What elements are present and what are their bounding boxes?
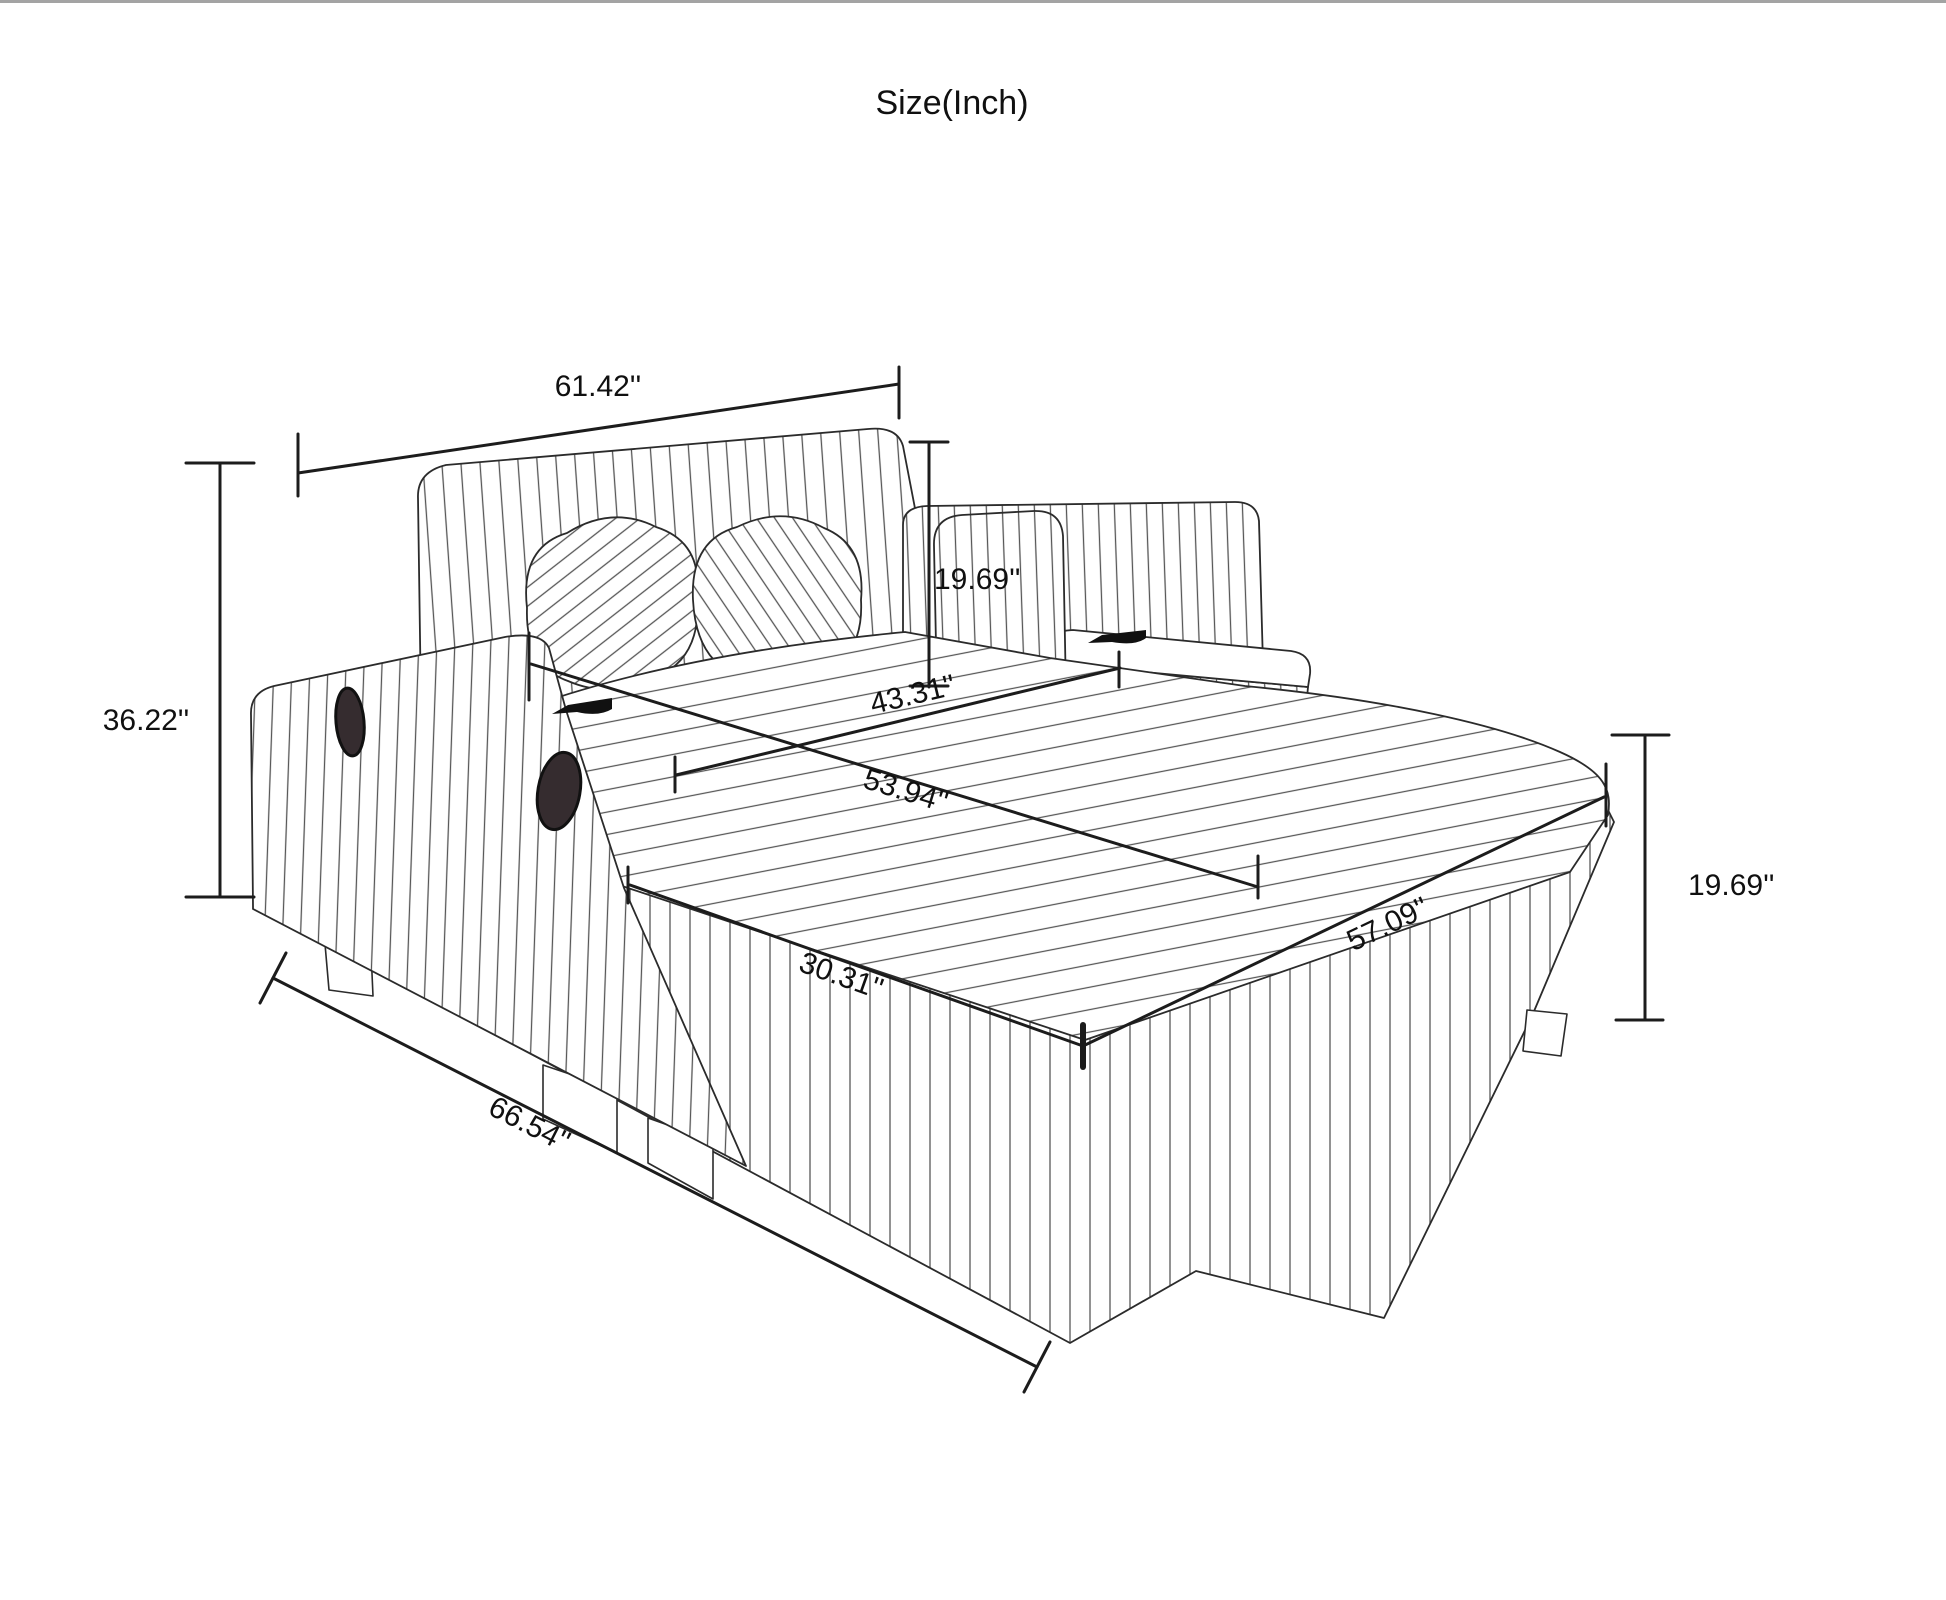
dim-label-overall-height: 36.22'' — [103, 704, 190, 737]
top-border-line — [0, 0, 1946, 3]
dim-label-backrest-cushion-height: 19.69'' — [934, 563, 1021, 596]
page-title: Size(Inch) — [875, 84, 1028, 122]
dim-label-seat-base-height: 19.69'' — [1688, 869, 1775, 902]
dim-line-seat-base-height — [1612, 735, 1669, 1020]
sofa-foot — [1523, 1010, 1567, 1056]
sofa-dimension-diagram: Size(Inch) — [0, 0, 1946, 1600]
dim-label-back-top-width: 61.42'' — [555, 370, 642, 403]
dim-line-overall-height — [186, 463, 254, 897]
sofa-drawing — [251, 429, 1614, 1343]
size-diagram-page: Size(Inch) — [0, 0, 1946, 1600]
